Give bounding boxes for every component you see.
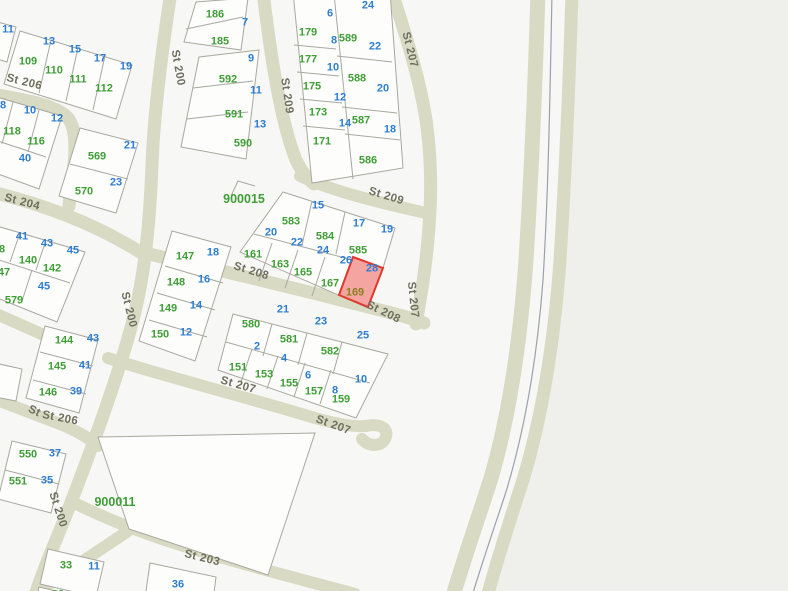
parcel-900011[interactable] — [98, 433, 315, 575]
parcel-row[interactable] — [181, 50, 259, 159]
map-graphics — [0, 0, 788, 591]
map-canvas[interactable]: St 206St 200St 209St 207St 204St 209St 2… — [0, 0, 788, 591]
parcel-block[interactable] — [293, 0, 403, 183]
street-206-lower-band — [0, 398, 98, 446]
parcel-row[interactable] — [26, 326, 98, 413]
street-stub-band — [0, 312, 46, 336]
parcel[interactable] — [141, 563, 216, 591]
parcel-row[interactable] — [0, 224, 85, 322]
parcel-row[interactable] — [184, 0, 248, 50]
parcel[interactable] — [0, 362, 22, 401]
